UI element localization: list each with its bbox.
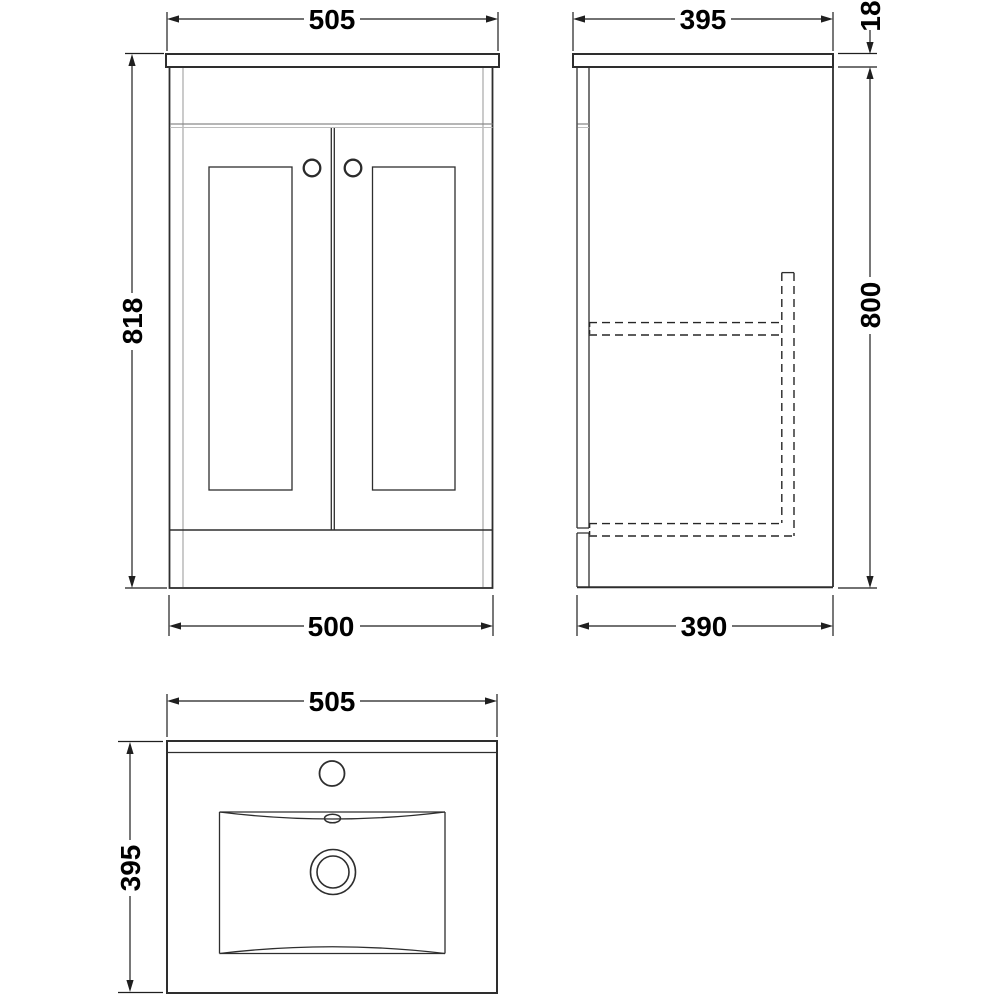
arrowhead-left — [169, 622, 181, 629]
technical-drawing-canvas: 505 818 500 — [0, 0, 1000, 1000]
arrowhead-up — [866, 67, 873, 79]
basin-outline — [167, 741, 497, 993]
front-door-divider — [331, 128, 334, 530]
front-dimensions: 505 818 500 — [117, 4, 498, 642]
front-worktop — [166, 54, 499, 67]
dim-label-plan-depth: 395 — [115, 845, 146, 892]
side-view — [573, 54, 833, 587]
door-knob-left — [304, 160, 321, 177]
arrowhead-right — [481, 622, 493, 629]
arrowhead-down — [866, 42, 873, 54]
side-door-bottom-caps — [577, 528, 589, 533]
vanity-unit-drawing: 505 818 500 — [0, 0, 1000, 1000]
arrowhead-down — [126, 980, 133, 992]
arrowhead-left — [167, 15, 179, 22]
plan-view — [167, 741, 497, 993]
side-worktop — [573, 54, 833, 67]
arrowhead-right — [821, 15, 833, 22]
dim-label-front-height: 818 — [117, 298, 148, 345]
side-plinth-edge — [577, 533, 589, 587]
dim-label-worktop-thickness: 18 — [855, 0, 886, 31]
arrowhead-right — [485, 697, 497, 704]
arrowhead-up — [126, 742, 133, 754]
dim-label-front-width-bottom: 500 — [308, 611, 355, 642]
front-right-door-panel — [373, 167, 456, 490]
arrowhead-right — [486, 15, 498, 22]
side-hidden-shelf-bottom — [589, 524, 794, 536]
side-hidden-shelf-mid — [589, 323, 780, 335]
front-side-panel-lines — [183, 68, 483, 587]
dim-label-front-width-top: 505 — [309, 4, 356, 35]
front-view — [166, 54, 499, 588]
arrowhead-left — [577, 622, 589, 629]
door-knob-right — [345, 160, 362, 177]
arrowhead-left — [573, 15, 585, 22]
front-left-door-panel — [209, 167, 292, 490]
side-dimensions: 395 18 800 390 — [573, 0, 886, 641]
dim-label-side-height: 800 — [855, 282, 886, 329]
arrowhead-up — [128, 54, 135, 66]
worktop-thickness-ext-lines — [838, 54, 877, 68]
dim-label-side-depth-bottom: 390 — [681, 611, 728, 642]
side-door-edge — [577, 68, 589, 528]
arrowhead-down — [866, 576, 873, 588]
arrowhead-down — [128, 576, 135, 588]
arrowhead-right — [821, 622, 833, 629]
dim-label-side-depth-top: 395 — [680, 4, 727, 35]
dim-label-plan-width: 505 — [309, 686, 356, 717]
arrowhead-left — [167, 697, 179, 704]
